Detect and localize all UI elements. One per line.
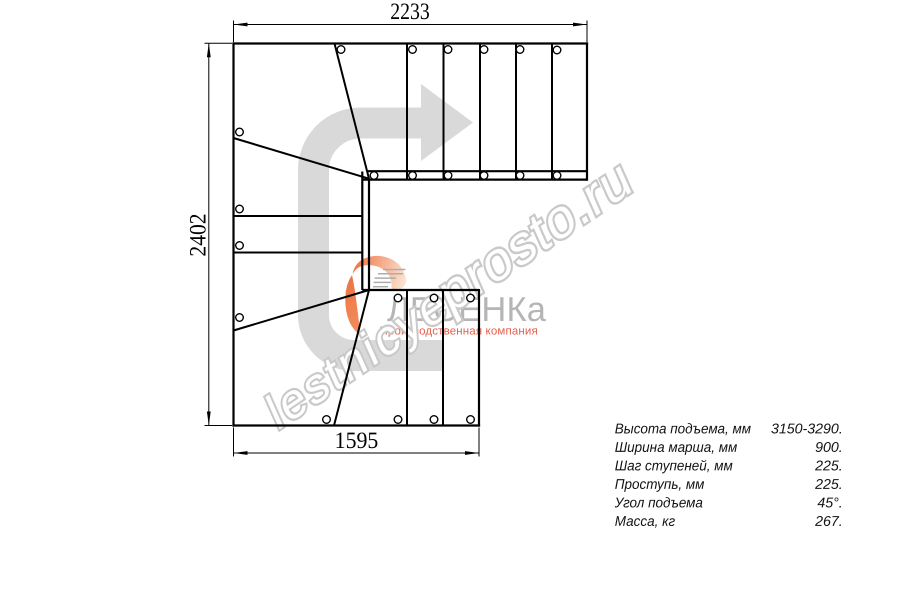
svg-text:Высота подъема, мм: Высота подъема, мм [615, 421, 752, 437]
svg-text:267.: 267. [814, 514, 843, 530]
svg-text:Шаг ступеней, мм: Шаг ступеней, мм [615, 458, 733, 474]
svg-text:Угол подъема: Угол подъема [614, 495, 703, 511]
svg-text:1595: 1595 [335, 428, 379, 454]
svg-text:Проступь, мм: Проступь, мм [615, 477, 705, 493]
svg-text:2233: 2233 [390, 0, 429, 25]
svg-text:225.: 225. [814, 458, 843, 474]
svg-text:900.: 900. [815, 440, 843, 456]
svg-text:Ширина марша, мм: Ширина марша, мм [615, 440, 738, 456]
svg-text:225.: 225. [814, 477, 843, 493]
svg-text:3150-3290.: 3150-3290. [771, 421, 843, 437]
svg-text:45°.: 45°. [817, 495, 842, 511]
svg-text:Масса, кг: Масса, кг [615, 514, 675, 530]
svg-text:2402: 2402 [185, 213, 211, 256]
